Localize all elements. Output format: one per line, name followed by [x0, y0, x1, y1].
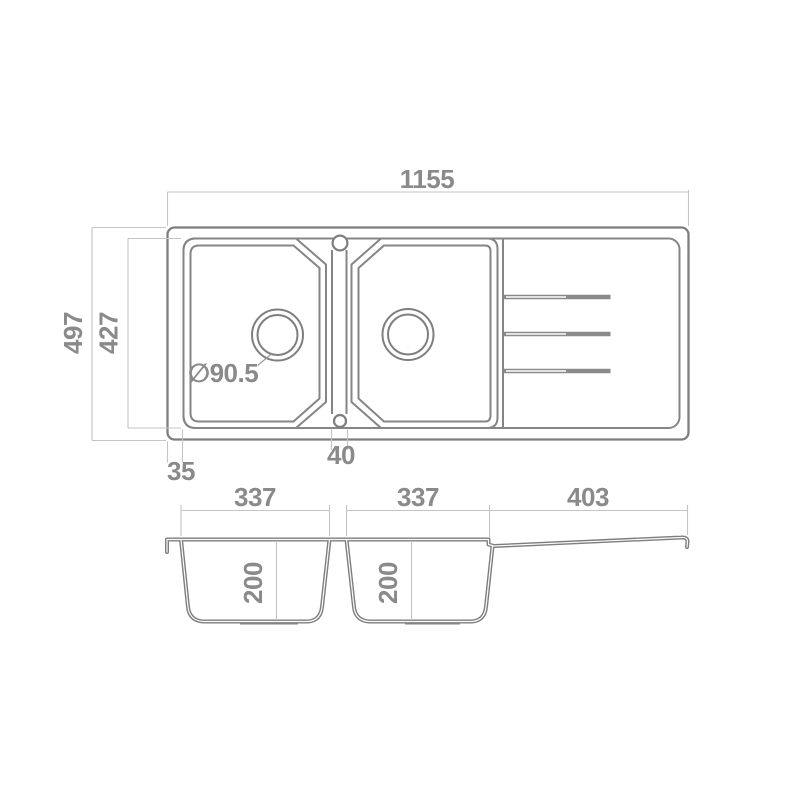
dim-divider-label: 40: [327, 440, 355, 470]
dim-inner-depth-label: 427: [94, 312, 124, 354]
plan-left-drain-inner: [258, 315, 298, 355]
plan-tap-hole: [333, 236, 348, 251]
section-bowl2: [347, 540, 493, 622]
dim-overall-width-label: 1155: [400, 164, 454, 194]
plan-bottom-hole: [334, 415, 346, 427]
plan-right-bowl-outer: [352, 239, 498, 429]
dim-drainboard-width-label: 403: [567, 482, 609, 512]
plan-right-bowl-inner: [359, 246, 491, 422]
plan-left-drain-outer: [252, 310, 303, 361]
plan-right-drain-inner: [388, 315, 428, 355]
drawing-canvas: 1155 497 427 35 40 ∅90.5: [0, 0, 800, 800]
plan-drainboard-grooves: [504, 297, 611, 371]
dim-bowl1-width-label: 337: [234, 482, 276, 512]
sink-technical-drawing: 1155 497 427 35 40 ∅90.5: [0, 0, 800, 800]
dim-edge-offset-label: 35: [167, 456, 195, 486]
dim-drain-diameter-label: ∅90.5: [188, 358, 258, 388]
section-dimensions: 337 337 403 200 200: [181, 482, 688, 620]
dim-bowl2-width-label: 337: [397, 482, 439, 512]
plan-right-drain-outer: [383, 309, 434, 360]
plan-left-bowl-outer: [184, 239, 327, 429]
dim-overall-depth-label: 497: [58, 312, 88, 354]
plan-dimensions: 1155 497 427 35 40 ∅90.5: [58, 164, 689, 486]
dim-bowl2-depth-label: 200: [373, 562, 403, 604]
section-bowl2-core: [347, 540, 493, 622]
dim-bowl1-depth-label: 200: [238, 562, 268, 604]
plan-left-bowl-inner: [191, 246, 320, 422]
plan-view: [168, 228, 689, 440]
